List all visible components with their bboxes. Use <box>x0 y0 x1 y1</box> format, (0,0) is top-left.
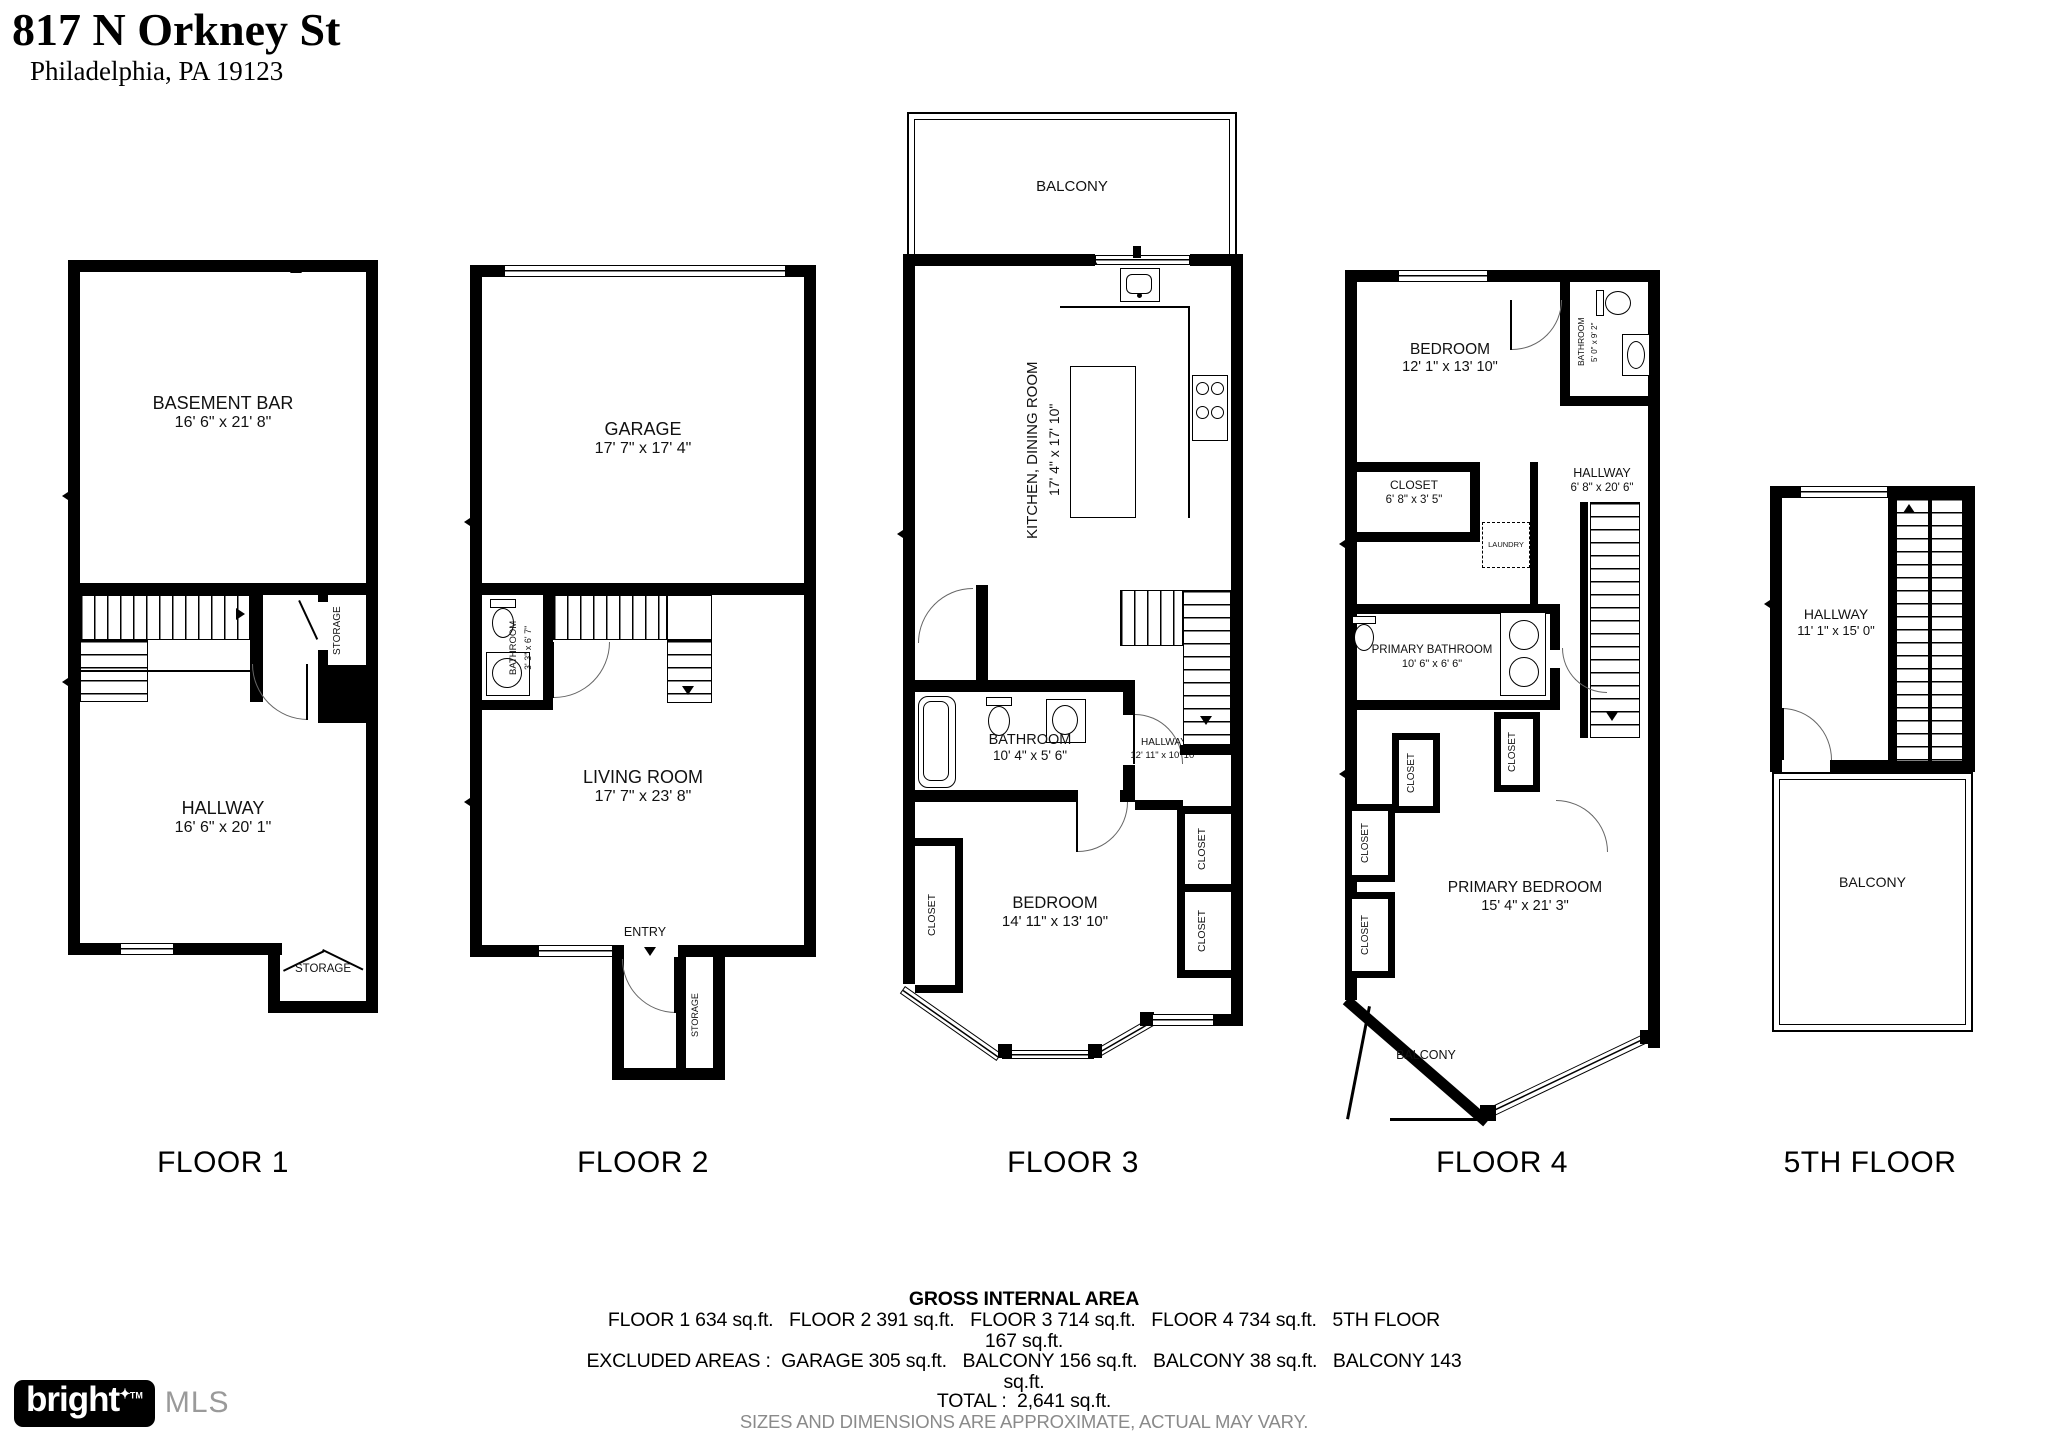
floor4-bathroom-dims: 5' 0" x 9' 2" <box>1590 296 1602 388</box>
header: 817 N Orkney St Philadelphia, PA 19123 <box>12 6 340 87</box>
floor3-wall <box>1135 800 1183 810</box>
balcony-door <box>1095 255 1190 265</box>
floor4-closet-mid-right-label: CLOSET <box>1507 725 1526 779</box>
floor4-caption: FLOOR 4 <box>1352 1146 1652 1180</box>
primary-bedroom-label: PRIMARY BEDROOM <box>1420 878 1630 897</box>
floor2-bathroom-wall-bottom <box>482 700 553 710</box>
kitchen-sink <box>1120 268 1160 302</box>
door-leaf <box>306 664 308 720</box>
wall-marker <box>464 796 473 808</box>
closet-wall <box>1177 806 1185 978</box>
floor5-balcony-outline <box>1772 772 1973 1032</box>
sink-basin <box>1509 657 1539 687</box>
floor2-stair-landing <box>667 595 712 640</box>
summary-disclaimer: SIZES AND DIMENSIONS ARE APPROXIMATE, AC… <box>524 1411 1524 1433</box>
floor4-bath-wall <box>1560 396 1660 406</box>
closet-wall <box>1177 806 1231 814</box>
floor4-right-wall <box>1648 900 1660 1048</box>
floor1-closet-door-gap <box>318 602 328 650</box>
closet-wall <box>1177 884 1231 892</box>
burner <box>1211 406 1224 419</box>
stair-direction-arrow <box>1606 712 1618 721</box>
wall-marker <box>644 947 656 956</box>
garage-label: GARAGE <box>493 418 793 441</box>
floor1-hallway-label: HALLWAY <box>118 797 328 820</box>
closet-room-wall <box>1470 462 1480 542</box>
floor4-hallway-label: HALLWAY <box>1540 466 1664 482</box>
entry-label: ENTRY <box>600 925 690 941</box>
floor4-closet-room-label: CLOSET <box>1358 478 1470 493</box>
bright-logo-box: bright✦TM <box>14 1380 155 1427</box>
floor2-storage-label: STORAGE <box>690 975 706 1055</box>
floor5-hallway-dims: 11' 1" x 15' 0" <box>1782 623 1890 639</box>
primary-bedroom-dims: 15' 4" x 21' 3" <box>1420 897 1630 915</box>
bay-corner <box>1640 1030 1660 1044</box>
floor4-hallway-dims: 6' 8" x 20' 6" <box>1540 481 1664 495</box>
floor4-wall <box>1530 462 1538 604</box>
wall-marker <box>464 516 473 528</box>
window <box>1398 270 1488 282</box>
floor4-closet-mid-left-label: CLOSET <box>1406 746 1425 800</box>
floor5-stair-divider <box>1928 498 1932 762</box>
floor3-vestibule-wall <box>976 585 988 682</box>
floor3-stair-wall <box>1180 745 1243 755</box>
sink-basin <box>1627 341 1645 369</box>
door-leaf <box>1076 802 1078 852</box>
bay-corner <box>1480 1105 1496 1121</box>
garage-dims: 17' 7" x 17' 4" <box>493 439 793 459</box>
wall-marker <box>897 528 906 540</box>
toilet-tank <box>986 697 1012 706</box>
floor4-closet-room-dims: 6' 8" x 3' 5" <box>1358 493 1470 507</box>
floor3-bathroom-dims: 10' 4" x 5' 6" <box>940 748 1120 765</box>
burner <box>1196 382 1209 395</box>
floor2-bathroom-dims: 3' 3" x 6' 7" <box>523 598 536 698</box>
floor4-stair-wall <box>1580 502 1588 738</box>
laundry-label: LAUNDRY <box>1482 540 1530 549</box>
floor4-stairs <box>1590 502 1640 738</box>
stair-direction-arrow <box>236 608 245 620</box>
bay-corner <box>998 1044 1012 1058</box>
floor2-interior-wall <box>482 583 804 595</box>
summary-line3: EXCLUDED AREAS : GARAGE 305 sq.ft. BALCO… <box>524 1350 1524 1373</box>
toilet-bowl <box>1605 291 1631 315</box>
floor2-storage-wall <box>676 957 686 1068</box>
page-subtitle: Philadelphia, PA 19123 <box>30 56 340 87</box>
door-leaf <box>1510 300 1512 350</box>
window <box>1152 1014 1214 1026</box>
basement-bar-label: BASEMENT BAR <box>118 392 328 415</box>
floor5-caption: 5TH FLOOR <box>1720 1146 2020 1180</box>
living-room-label: LIVING ROOM <box>493 766 793 789</box>
floor1-storage-bottom-label: STORAGE <box>272 962 374 976</box>
bay-window <box>1488 1033 1649 1117</box>
floor3-bedroom-dims: 14' 11" x 13' 10" <box>950 913 1160 932</box>
floor1-interior-wall <box>80 583 366 595</box>
toilet-tank <box>1352 616 1376 624</box>
stair-direction-arrow <box>1903 504 1915 513</box>
primary-bath-wall-right <box>1550 668 1560 710</box>
summary-line1: FLOOR 1 634 sq.ft. FLOOR 2 391 sq.ft. FL… <box>524 1309 1524 1332</box>
stair-landing-line <box>80 670 250 672</box>
counter-line <box>1188 306 1190 518</box>
door-opening <box>1782 760 1830 772</box>
kitchen-label: KITCHEN, DINING ROOM <box>1024 330 1040 570</box>
balcony-rail <box>1346 1006 1371 1119</box>
floor4-bathroom-label: BATHROOM <box>1576 296 1589 388</box>
kitchen-dims: 17' 4" x 17' 10" <box>1046 330 1061 570</box>
floor5-hallway-label: HALLWAY <box>1782 606 1890 624</box>
floor3-closet-left-label: CLOSET <box>926 862 944 967</box>
floor4-bedroom-dims: 12' 1" x 13' 10" <box>1360 358 1540 376</box>
star-icon: ✦ <box>119 1385 130 1401</box>
summary-title: GROSS INTERNAL AREA <box>524 1288 1524 1311</box>
page-title: 817 N Orkney St <box>12 6 340 54</box>
floor3-closet-rb-label: CLOSET <box>1196 900 1216 962</box>
closet-room-wall <box>1357 532 1480 542</box>
door-leaf <box>1782 708 1784 760</box>
mls-label: MLS <box>165 1386 230 1420</box>
floor3-bedroom-label: BEDROOM <box>950 893 1160 914</box>
sink-basin <box>1126 274 1152 294</box>
bay-corner <box>1088 1044 1102 1058</box>
floor3-balcony-label: BALCONY <box>907 178 1237 197</box>
primary-bath-wall-bottom <box>1345 700 1560 710</box>
floor5-stairs-left <box>1896 498 1930 762</box>
primary-bathroom-dims: 10' 6" x 6' 6" <box>1352 658 1512 672</box>
sink-basin <box>1509 620 1539 650</box>
brand-logo: bright✦TM MLS <box>14 1380 230 1427</box>
brand-name: bright <box>26 1380 119 1419</box>
closet-wall <box>1177 970 1231 978</box>
floor2-caption: FLOOR 2 <box>493 1146 793 1180</box>
floor2-bathroom-label: BATHROOM <box>508 598 522 698</box>
living-room-dims: 17' 7" x 23' 8" <box>493 787 793 807</box>
burner <box>1211 382 1224 395</box>
balcony-inner-line <box>1779 779 1966 1025</box>
floor3-bathroom-wall-right <box>1123 680 1135 715</box>
wall-marker <box>62 490 71 502</box>
floor1-stairs-upper <box>80 595 250 640</box>
floor4-closet-left-bottom-label: CLOSET <box>1360 906 1379 964</box>
window <box>1800 486 1888 498</box>
floor4-closet-left-top-label: CLOSET <box>1360 816 1379 870</box>
wall-marker <box>1086 256 1098 265</box>
stove <box>1192 375 1228 441</box>
sink <box>1622 334 1650 376</box>
door-marker <box>1133 246 1141 258</box>
bedroom-door-opening <box>1078 790 1120 802</box>
garage-door-jamb <box>496 265 504 277</box>
wall-marker <box>1339 538 1348 550</box>
wall-marker <box>62 676 71 688</box>
window <box>538 945 618 957</box>
wall-marker <box>1339 768 1348 780</box>
garage-door <box>504 265 786 277</box>
wall-marker <box>1764 598 1773 610</box>
garage-door-jamb <box>786 265 794 277</box>
floor3-closet-rt-label: CLOSET <box>1196 820 1216 878</box>
closet-room-wall <box>1357 462 1480 472</box>
counter-line <box>1060 306 1190 308</box>
floor1-chase-block <box>318 665 366 723</box>
floor2-stairs-run <box>553 595 667 640</box>
floor3-bathroom-label: BATHROOM <box>940 731 1120 749</box>
closet-wall <box>955 838 963 993</box>
wall-marker <box>1518 272 1530 281</box>
floor3-bathroom-wall-top <box>903 680 1135 692</box>
floor1-hallway-dims: 16' 6" x 20' 1" <box>118 818 328 838</box>
trademark: TM <box>130 1390 143 1400</box>
drain <box>1137 293 1142 298</box>
floor1-caption: FLOOR 1 <box>73 1146 373 1180</box>
closet-wall <box>915 985 963 993</box>
floorplan-sheet: 817 N Orkney St Philadelphia, PA 19123 S… <box>0 0 2048 1448</box>
floor1-storage-label: STORAGE <box>332 600 358 662</box>
primary-bath-wall-right <box>1550 604 1560 650</box>
bay-window <box>1002 1050 1094 1059</box>
stair-direction-arrow <box>682 686 694 695</box>
balcony-rail <box>1390 1118 1482 1121</box>
kitchen-island <box>1070 366 1136 518</box>
basement-bar-dims: 16' 6" x 21' 8" <box>118 413 328 433</box>
floor3-stairs-run <box>1120 590 1183 646</box>
window <box>120 943 174 955</box>
primary-bathroom-label: PRIMARY BATHROOM <box>1352 643 1512 657</box>
stair-direction-arrow <box>1200 716 1212 725</box>
floor3-caption: FLOOR 3 <box>923 1146 1223 1180</box>
floor5-stairs-right <box>1930 498 1963 762</box>
wall-marker <box>290 264 302 273</box>
floor5-balcony-label: BALCONY <box>1772 874 1973 892</box>
summary-total: TOTAL : 2,641 sq.ft. <box>524 1390 1524 1413</box>
burner <box>1196 406 1209 419</box>
floor4-balcony-label: BALCONY <box>1378 1048 1474 1064</box>
